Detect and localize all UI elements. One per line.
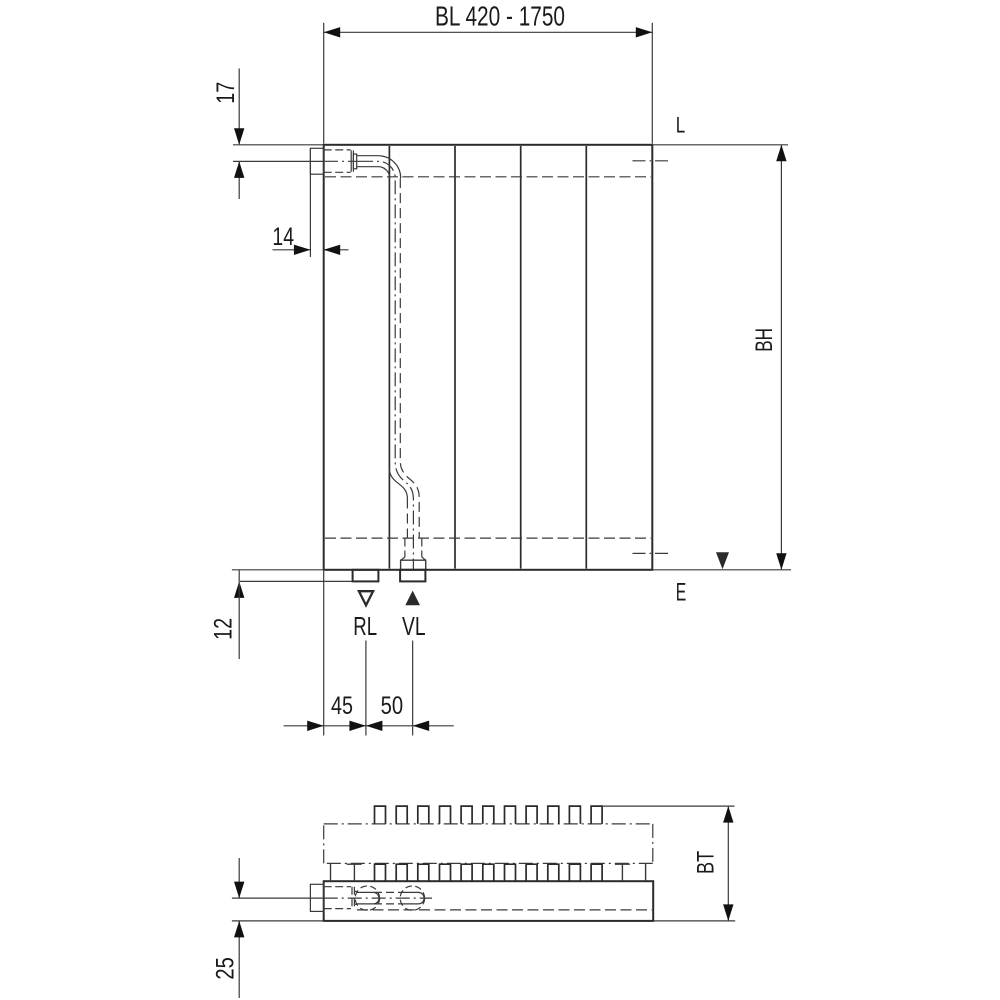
svg-text:14: 14: [272, 223, 294, 251]
svg-text:BT: BT: [693, 851, 720, 874]
svg-text:50: 50: [381, 692, 404, 720]
svg-text:E: E: [676, 579, 687, 607]
svg-text:RL: RL: [353, 613, 377, 641]
svg-text:45: 45: [331, 692, 353, 720]
svg-text:25: 25: [212, 957, 240, 980]
svg-text:VL: VL: [402, 613, 426, 641]
svg-text:L: L: [676, 113, 686, 138]
svg-text:BL 420 - 1750: BL 420 - 1750: [435, 1, 565, 32]
svg-text:BH: BH: [751, 328, 778, 352]
svg-text:12: 12: [210, 618, 238, 640]
svg-text:17: 17: [212, 82, 240, 104]
